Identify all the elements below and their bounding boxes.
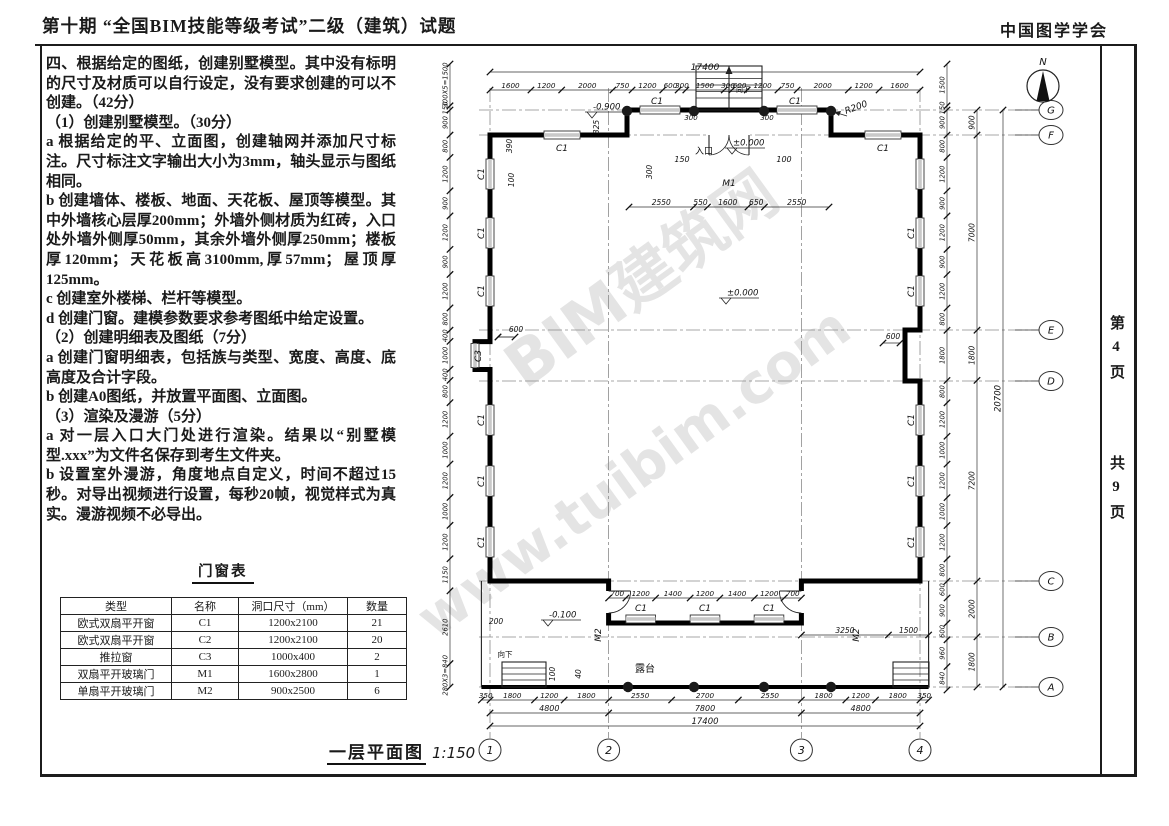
dim-value: 900 bbox=[939, 604, 947, 617]
table-cell: 欧式双扇平开窗 bbox=[61, 615, 172, 632]
dim-value: 1200 bbox=[540, 691, 559, 700]
frame-right-line bbox=[1134, 44, 1137, 777]
dim-value: 1000 bbox=[442, 347, 450, 364]
plan-annotation: 300 bbox=[645, 165, 654, 180]
dim-value: 600 bbox=[939, 625, 947, 638]
stair-arrow-head bbox=[726, 66, 733, 74]
dim-value: 1200 bbox=[537, 81, 556, 90]
dim-value: 1200 bbox=[939, 283, 947, 300]
dim-value: 650 bbox=[749, 198, 764, 207]
dim-value: 800 bbox=[442, 140, 450, 153]
grid-bubble-label: E bbox=[1048, 326, 1055, 337]
table-cell: 900x2500 bbox=[239, 683, 348, 700]
question-paragraph: （1）创建别墅模型。（30分） bbox=[46, 114, 396, 134]
dim-value: 840 bbox=[939, 672, 947, 685]
dim-value: 1200 bbox=[852, 691, 871, 700]
plan-annotation: 150 bbox=[674, 155, 689, 164]
dim-value: 900 bbox=[968, 115, 977, 130]
question-paragraph: c 创建室外楼梯、栏杆等模型。 bbox=[46, 290, 396, 310]
table-row: 类型名称洞口尺寸（mm）数量 bbox=[61, 598, 407, 615]
page-number: 第4页 bbox=[1106, 315, 1127, 388]
dim-value: 1600 bbox=[890, 81, 909, 90]
window-glass bbox=[777, 108, 817, 112]
plan-annotation: M1 bbox=[722, 179, 736, 189]
dim-value: 900 bbox=[939, 255, 947, 268]
plan-annotation: C1 bbox=[477, 475, 487, 487]
dim-value: 900 bbox=[939, 197, 947, 210]
door-window-schedule: 类型名称洞口尺寸（mm）数量欧式双扇平开窗C11200x210021欧式双扇平开… bbox=[60, 597, 407, 700]
question-paragraph: 四、根据给定的图纸，创建别墅模型。其中没有标明的尺寸及材质可以自行设定，没有要求… bbox=[46, 55, 396, 114]
dim-value: 4800 bbox=[851, 704, 871, 713]
dim-value: 1500 bbox=[939, 76, 947, 93]
dim-value: 2550 bbox=[761, 691, 780, 700]
table-row: 双扇平开玻璃门M11600x28001 bbox=[61, 666, 407, 683]
plan-annotation: C1 bbox=[477, 168, 487, 180]
dim-value: 1200 bbox=[442, 283, 450, 300]
dim-value: 1200 bbox=[939, 411, 947, 428]
plan-annotation: C1 bbox=[651, 97, 663, 107]
table-cell: 1000x400 bbox=[239, 649, 348, 666]
table-row: 单扇平开玻璃门M2900x25006 bbox=[61, 683, 407, 700]
window-glass bbox=[918, 405, 922, 435]
dim-value: 2000 bbox=[968, 599, 977, 618]
table-cell: C1 bbox=[172, 615, 239, 632]
grid-bubble-label: G bbox=[1047, 106, 1055, 117]
dim-value: 1500 bbox=[899, 626, 918, 635]
dim-value: 2000 bbox=[814, 81, 833, 90]
window-glass bbox=[488, 218, 492, 248]
grid-bubble-label: D bbox=[1047, 377, 1055, 388]
window-glass bbox=[918, 466, 922, 496]
plan-annotation: 向下 bbox=[736, 85, 750, 94]
question-paragraph: a 对一层入口大门处进行渲染。结果以“别墅模型.xxx”为文件名保存到考生文件夹… bbox=[46, 427, 396, 466]
table-row: 欧式双扇平开窗C11200x210021 bbox=[61, 615, 407, 632]
dim-value: 1800 bbox=[503, 691, 522, 700]
page-total: 共9页 bbox=[1106, 455, 1127, 528]
north-arrow: N bbox=[1027, 57, 1059, 102]
dim-value: 7000 bbox=[968, 223, 977, 242]
frame-top-line bbox=[35, 44, 1135, 46]
plan-annotation: 300 bbox=[684, 114, 698, 122]
table-cell: C2 bbox=[172, 632, 239, 649]
dim-value: 1200 bbox=[939, 165, 947, 182]
dim-value: 1200 bbox=[442, 224, 450, 241]
dim-value: 7800 bbox=[695, 704, 715, 713]
dim-value: 750 bbox=[616, 81, 630, 90]
dim-value: 17400 bbox=[691, 717, 718, 727]
dim-value: 7200 bbox=[968, 471, 977, 490]
dim-value: 800 bbox=[442, 385, 450, 398]
dim-value: 700 bbox=[610, 589, 624, 598]
dim-value: 800 bbox=[939, 140, 947, 153]
dim-value: 700 bbox=[786, 589, 800, 598]
plan-annotation: 露台 bbox=[635, 662, 655, 675]
grid-bubble-label: B bbox=[1048, 633, 1055, 644]
table-cell: 洞口尺寸（mm） bbox=[239, 598, 348, 615]
level-value: -0.100 bbox=[549, 611, 576, 621]
level-value: ±0.000 bbox=[727, 289, 758, 299]
north-needle bbox=[1037, 71, 1050, 101]
dim-value: 1200 bbox=[753, 81, 772, 90]
table-cell: 1600x2800 bbox=[239, 666, 348, 683]
plan-annotation: C1 bbox=[477, 227, 487, 239]
dim-value: 2000 bbox=[578, 81, 597, 90]
table-row: 欧式双扇平开窗C21200x210020 bbox=[61, 632, 407, 649]
grid-bubble-label: 1 bbox=[487, 744, 494, 757]
plan-annotation: 300 bbox=[760, 114, 774, 122]
level-triangle bbox=[727, 148, 737, 154]
question-paragraph: a 根据给定的平、立面图，创建轴网并添加尺寸标注。尺寸标注文字输出大小为3mm，… bbox=[46, 133, 396, 192]
dim-value: 20700 bbox=[994, 385, 1004, 412]
dim-value: 800 bbox=[939, 385, 947, 398]
grid-bubble-label: 4 bbox=[917, 744, 924, 757]
level-value: ±0.000 bbox=[733, 139, 764, 149]
dim-value: 900 bbox=[442, 255, 450, 268]
organization-name: 中国图学学会 bbox=[1000, 17, 1108, 41]
grid-bubble-label: A bbox=[1047, 683, 1055, 694]
table-cell: 1200x2100 bbox=[239, 632, 348, 649]
table-row: 推拉窗C31000x4002 bbox=[61, 649, 407, 666]
plan-annotation: 向下 bbox=[498, 649, 513, 659]
dim-value: 1000 bbox=[442, 503, 450, 520]
plan-annotation: C1 bbox=[477, 414, 487, 426]
plan-annotation: C1 bbox=[763, 604, 775, 614]
plan-annotation: C1 bbox=[907, 414, 917, 426]
dim-value: 1400 bbox=[664, 589, 683, 598]
window-glass bbox=[754, 617, 784, 621]
dim-value: 1800 bbox=[814, 691, 833, 700]
dim-value: 600 bbox=[939, 583, 947, 596]
watermark: BIM建筑网www.tuibim.com bbox=[405, 156, 862, 650]
window-glass bbox=[690, 617, 720, 621]
table-cell: 推拉窗 bbox=[61, 649, 172, 666]
table-cell: M2 bbox=[172, 683, 239, 700]
dim-value: 1200 bbox=[638, 81, 657, 90]
plan-annotation: C1 bbox=[877, 144, 889, 154]
window-glass bbox=[488, 159, 492, 189]
dim-value: 17400 bbox=[691, 63, 720, 73]
plan-annotation: C1 bbox=[699, 604, 711, 614]
plan-annotation: 100 bbox=[776, 155, 791, 164]
question-paragraph: b 创建A0图纸，并放置平面图、立面图。 bbox=[46, 388, 396, 408]
dim-value: 800 bbox=[939, 564, 947, 577]
plan-annotation: 100 bbox=[507, 173, 516, 188]
floor-plan-drawing: BIM建筑网www.tuibim.com17400160012002000750… bbox=[395, 50, 1100, 770]
grid-bubble-label: 2 bbox=[605, 744, 612, 757]
dim-value: 1400 bbox=[728, 589, 747, 598]
window-glass bbox=[488, 276, 492, 306]
grid-bubble-label: F bbox=[1048, 131, 1054, 142]
question-paragraph: （2）创建明细表及图纸（7分） bbox=[46, 329, 396, 349]
table-cell: 类型 bbox=[61, 598, 172, 615]
plan-annotation: 600 bbox=[509, 325, 524, 334]
table-cell: M1 bbox=[172, 666, 239, 683]
table-cell: 名称 bbox=[172, 598, 239, 615]
plan-annotation: M2 bbox=[594, 628, 604, 642]
plan-annotation: C1 bbox=[907, 536, 917, 548]
dim-value: 1800 bbox=[889, 691, 908, 700]
dim-value: 900 bbox=[939, 116, 947, 129]
window-glass bbox=[488, 405, 492, 435]
dim-value: 960 bbox=[939, 647, 947, 660]
column-dot bbox=[826, 106, 836, 116]
plan-annotation: R200 bbox=[844, 99, 870, 117]
window-glass bbox=[918, 159, 922, 189]
grid-bubble-label: 3 bbox=[798, 744, 805, 757]
plan-annotation: 入口 bbox=[695, 146, 713, 156]
dim-value: 4800 bbox=[539, 704, 559, 713]
dim-value: 1800 bbox=[577, 691, 596, 700]
plan-annotation: 325 bbox=[592, 120, 601, 135]
dim-value: 2550 bbox=[787, 198, 806, 207]
dim-value: 2610 bbox=[442, 619, 450, 636]
plan-annotation: 40 bbox=[574, 669, 583, 679]
dim-value: 1000 bbox=[939, 503, 947, 520]
window-glass bbox=[918, 527, 922, 557]
question-text: 四、根据给定的图纸，创建别墅模型。其中没有标明的尺寸及材质可以自行设定，没有要求… bbox=[46, 55, 396, 525]
plan-annotation: 200 bbox=[489, 617, 504, 626]
level-triangle bbox=[721, 298, 731, 304]
plan-annotation: C1 bbox=[477, 285, 487, 297]
dim-value: 1000 bbox=[442, 441, 450, 458]
north-label: N bbox=[1039, 57, 1047, 68]
window-glass bbox=[488, 527, 492, 557]
plan-annotation: M2 bbox=[852, 628, 862, 642]
window-glass bbox=[488, 466, 492, 496]
plan-annotation: C1 bbox=[907, 227, 917, 239]
level-triangle bbox=[587, 112, 597, 118]
dim-value: 1200 bbox=[442, 165, 450, 182]
table-cell: 欧式双扇平开窗 bbox=[61, 632, 172, 649]
dim-value: 400 bbox=[442, 368, 450, 381]
dim-value: 1000 bbox=[939, 442, 947, 459]
question-paragraph: b 创建墙体、楼板、地面、天花板、屋顶等模型。其中外墙核心层厚200mm；外墙外… bbox=[46, 192, 396, 290]
plan-annotation: C1 bbox=[907, 475, 917, 487]
plan-annotation: C1 bbox=[477, 536, 487, 548]
question-paragraph: b 设置室外漫游，角度地点自定义，时间不超过15秒。对导出视频进行设置，每秒20… bbox=[46, 466, 396, 525]
plan-annotation: C1 bbox=[635, 604, 647, 614]
window-glass bbox=[865, 133, 901, 137]
frame-bottom-line bbox=[40, 774, 1136, 777]
dim-value: 1200 bbox=[442, 533, 450, 550]
window-glass bbox=[918, 218, 922, 248]
dim-value: 1200 bbox=[760, 589, 779, 598]
dim-value: 550 bbox=[693, 198, 708, 207]
question-paragraph: d 创建门窗。建模参数要求参考图纸中给定设置。 bbox=[46, 310, 396, 330]
dim-value: 900 bbox=[442, 116, 450, 129]
dim-value: 300X5=1500 bbox=[442, 62, 450, 107]
dim-value: 2700 bbox=[696, 691, 715, 700]
table-cell: C3 bbox=[172, 649, 239, 666]
level-triangle bbox=[543, 620, 553, 626]
plan-annotation: 600 bbox=[886, 332, 901, 341]
dim-value: 1200 bbox=[632, 589, 651, 598]
dim-value: 750 bbox=[781, 81, 795, 90]
dim-value: 800 bbox=[442, 313, 450, 326]
dim-value: 1800 bbox=[939, 347, 947, 364]
dim-value: 2550 bbox=[631, 691, 650, 700]
window-glass bbox=[544, 133, 580, 137]
dim-value: 1800 bbox=[968, 346, 977, 365]
question-paragraph: a 创建门窗明细表，包括族与类型、宽度、高度、底高度及合计字段。 bbox=[46, 349, 396, 388]
plan-annotation: C1 bbox=[556, 144, 568, 154]
table-cell: 单扇平开玻璃门 bbox=[61, 683, 172, 700]
dim-value: 1200 bbox=[442, 411, 450, 428]
dim-value: 1600 bbox=[501, 81, 520, 90]
dim-value: 1600 bbox=[718, 198, 737, 207]
grid-bubble-label: C bbox=[1048, 577, 1055, 588]
table-cell: 双扇平开玻璃门 bbox=[61, 666, 172, 683]
plan-annotation: C1 bbox=[789, 97, 801, 107]
dim-value: 1800 bbox=[968, 652, 977, 671]
dim-value: 1200 bbox=[939, 224, 947, 241]
right-exterior-stair bbox=[893, 662, 929, 687]
dim-value: 1200 bbox=[855, 81, 874, 90]
dim-value: 1200 bbox=[939, 472, 947, 489]
plan-annotation: C3 bbox=[474, 350, 484, 362]
dim-value: 1200 bbox=[442, 472, 450, 489]
dim-value: 1150 bbox=[442, 566, 450, 583]
plan-annotation: C1 bbox=[907, 285, 917, 297]
dim-value: 1200 bbox=[696, 589, 715, 598]
dim-value: 2550 bbox=[652, 198, 671, 207]
dim-value: 800 bbox=[939, 313, 947, 326]
left-exterior-stair bbox=[502, 662, 546, 687]
dim-value: 900 bbox=[442, 197, 450, 210]
dim-value: 1200 bbox=[939, 534, 947, 551]
level-value: -0.900 bbox=[593, 103, 620, 113]
schedule-title: 门窗表 bbox=[192, 560, 254, 584]
plan-annotation: 100 bbox=[548, 667, 557, 682]
window-glass bbox=[626, 617, 656, 621]
question-paragraph: （3）渲染及漫游（5分） bbox=[46, 408, 396, 428]
frame-left-line bbox=[40, 44, 42, 777]
plan-annotation: 390 bbox=[505, 139, 514, 154]
dim-value: 1500 bbox=[696, 81, 715, 90]
column-dot bbox=[622, 106, 632, 116]
table-cell: 1200x2100 bbox=[239, 615, 348, 632]
dim-value: 400 bbox=[442, 329, 450, 342]
frame-inner-right-line bbox=[1100, 44, 1102, 777]
window-glass bbox=[640, 108, 680, 112]
document-title: 第十期 “全国BIM技能等级考试”二级（建筑）试题 bbox=[42, 13, 456, 38]
window-glass bbox=[918, 276, 922, 306]
